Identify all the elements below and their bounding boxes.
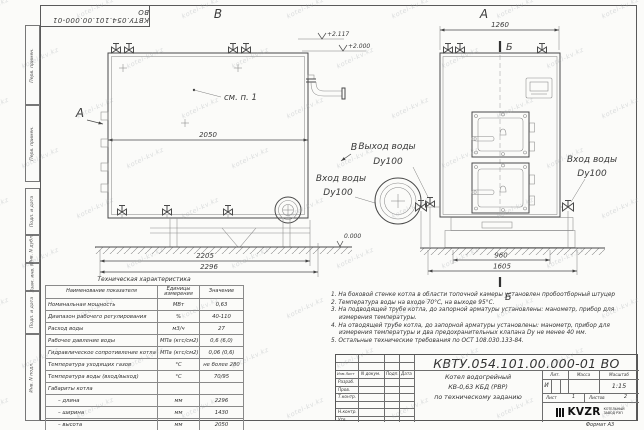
spec-table: Наименование показателя Единицыизмерения… xyxy=(45,285,244,430)
elevation-text: +2.117 xyxy=(327,31,349,38)
spec-cell-value: 2296 xyxy=(200,395,244,407)
spec-header-row: Наименование показателя Единицыизмерения… xyxy=(46,286,244,299)
valve-symbol xyxy=(416,201,427,212)
product-name-line3: по техническому заданию xyxy=(414,393,542,403)
upper-door xyxy=(472,112,535,157)
outlet-elbow-pipe xyxy=(306,75,345,99)
spec-cell-name: Номинальная мощность xyxy=(46,299,158,311)
title-block: КВТУ.054.101.00.000-01 ВО Изм.Лист N док… xyxy=(335,354,638,421)
spec-cell-name: Гидравлическое сопротивление котла xyxy=(46,347,158,359)
inlet-side-line2: Dy100 xyxy=(323,188,353,198)
format-label: Формат А3 xyxy=(560,422,640,428)
view-b-arrow xyxy=(341,154,351,161)
spec-cell-value: 2050 xyxy=(200,419,244,430)
valve-symbol xyxy=(563,201,574,212)
dim-text: 1605 xyxy=(493,263,511,271)
note-item: 4. На отводящей трубе котла, до запорной… xyxy=(331,323,639,338)
spec-cell-unit: мм xyxy=(158,395,200,407)
front-view xyxy=(416,44,606,256)
burner-flange-small xyxy=(275,197,301,223)
tb-header-izm: Изм.Лист xyxy=(337,372,355,376)
sheet-value: 1 xyxy=(572,395,575,400)
valve-symbol xyxy=(456,44,465,54)
doc-number: КВТУ.054.101.00.000-01 ВО xyxy=(414,356,639,371)
spec-col-units-l2: измерения xyxy=(164,291,193,297)
tb-row-utv: Утв. xyxy=(338,417,347,422)
spec-cell-name: – ширина xyxy=(46,407,158,419)
tb-header-doc: N докум. xyxy=(361,371,380,376)
scale-value: 1:15 xyxy=(599,382,639,390)
sheets-label: Листов xyxy=(589,395,605,400)
inlet-front-label: Вход воды Dy100 xyxy=(567,155,617,202)
view-b-arrow-label: В xyxy=(351,142,358,153)
see-note-text: см. п. 1 xyxy=(224,93,257,103)
view-a-title: А xyxy=(479,7,488,21)
spec-cell-unit: °С xyxy=(158,371,200,383)
dim-text: 2296 xyxy=(200,263,218,271)
logo-subtitle-line2: ЗАВОД РЭП xyxy=(604,412,625,416)
see-note-callout: см. п. 1 xyxy=(193,89,257,103)
inlet-front-line1: Вход воды xyxy=(567,155,617,165)
spec-cell-name: Габариты котла xyxy=(46,383,158,395)
dimension-side-mid: 2205 xyxy=(100,220,310,266)
valve-symbol xyxy=(112,44,121,54)
elevation-text: +2.000 xyxy=(348,43,370,50)
spec-cell-name: Рабочее давление воды xyxy=(46,335,158,347)
tb-row-nkontr: Н.контр. xyxy=(338,409,357,414)
lower-door xyxy=(472,163,535,213)
product-name: Котел водогрейный КВ-0,63 КБД (РВР) по т… xyxy=(414,373,542,403)
inlet-side-label: Вход воды Dy100 xyxy=(316,174,375,203)
mass-header: Масса xyxy=(568,372,599,377)
valve-symbol xyxy=(538,44,547,54)
side-view xyxy=(95,44,352,255)
spec-cell-unit: мм xyxy=(158,407,200,419)
technical-notes: 1. На боковой стенке котла в области топ… xyxy=(331,292,639,345)
note-item: 5. Остальные технические требования по О… xyxy=(331,338,639,346)
spec-cell-name: – высота xyxy=(46,419,158,430)
spec-row: Рабочее давление водыМПа (кгс/см2)0,6 (6… xyxy=(46,335,244,347)
product-name-line1: Котел водогрейный xyxy=(414,373,542,383)
spec-cell-name: Расход воды xyxy=(46,323,158,335)
kvzr-logo: KVZR КОТЕЛЬНЫЙ ЗАВОД РЭП xyxy=(542,406,639,418)
spec-cell-unit: МПа (кгс/см2) xyxy=(158,347,200,359)
tb-row-razrab: Разраб. xyxy=(338,379,354,384)
spec-cell-value: 40-110 xyxy=(200,311,244,323)
spec-cell-unit: °С xyxy=(158,359,200,371)
valve-symbol xyxy=(444,44,453,54)
spec-cell-value: 70/95 xyxy=(200,371,244,383)
spec-row: Номинальная мощностьМВт0,63 xyxy=(46,299,244,311)
spec-cell-value: 0,6 (6,0) xyxy=(200,335,244,347)
note-item: 3. На подводящей трубе котла, до запорно… xyxy=(331,307,639,322)
spec-cell-value: 1430 xyxy=(200,407,244,419)
section-letter: Б xyxy=(506,42,513,53)
spec-col-name: Наименование показателя xyxy=(46,286,158,299)
view-a-arrow-label: А xyxy=(75,106,84,120)
outlet-label-line2: Dy100 xyxy=(373,157,403,167)
spec-cell-name: Температура воды (вход/выход) xyxy=(46,371,158,383)
lit-header: Лит. xyxy=(542,372,568,377)
valve-symbol xyxy=(242,44,251,54)
spec-cell-name: Температура уходящих газов xyxy=(46,359,158,371)
spec-row: Температура воды (вход/выход)°С70/95 xyxy=(46,371,244,383)
inlet-flange-large xyxy=(375,178,435,247)
spec-col-value: Значение xyxy=(200,286,244,299)
product-name-line2: КВ-0,63 КБД (РВР) xyxy=(414,383,542,393)
logo-text: KVZR xyxy=(567,406,600,418)
base-plinth xyxy=(445,218,575,248)
valve-symbol xyxy=(118,206,127,216)
spec-table-block: Техническая характеристика Наименование … xyxy=(45,276,244,430)
spec-row: Габариты котла xyxy=(46,383,244,395)
dim-text: 960 xyxy=(494,252,508,260)
spec-cell-unit: м3/ч xyxy=(158,323,200,335)
outlet-label-line1: Выход воды xyxy=(358,142,415,152)
spec-cell-unit: % xyxy=(158,311,200,323)
note-item: 2. Температура воды на входе 70°С, на вы… xyxy=(331,300,639,308)
spec-row: – ширинамм1430 xyxy=(46,407,244,419)
spec-cell-value: 27 xyxy=(200,323,244,335)
spec-row: – длинамм2296 xyxy=(46,395,244,407)
spec-row: Гидравлическое сопротивление котлаМПа (к… xyxy=(46,347,244,359)
dim-text: 2205 xyxy=(196,252,214,260)
valve-symbol xyxy=(163,206,172,216)
tb-header-date: Дата xyxy=(401,371,412,376)
spec-cell-unit: мм xyxy=(158,419,200,430)
spec-cell-value xyxy=(200,383,244,395)
drawing-sheet: КВТУ.054.101.00.000-01 ВО Перв. примен. … xyxy=(0,0,644,430)
spec-cell-unit xyxy=(158,383,200,395)
ground-hatch xyxy=(95,248,352,255)
note-item: 1. На боковой стенке котла в области топ… xyxy=(331,292,639,300)
spec-cell-unit: МПа (кгс/см2) xyxy=(158,335,200,347)
spec-row: Расход водым3/ч27 xyxy=(46,323,244,335)
spec-cell-unit: МВт xyxy=(158,299,200,311)
sheet-label: Лист xyxy=(546,395,557,400)
view-a-arrow xyxy=(87,120,103,124)
dimension-side-top: 2050 xyxy=(108,131,308,140)
valve-symbol xyxy=(125,44,134,54)
spec-row: – высотамм2050 xyxy=(46,419,244,430)
spec-col-units: Единицыизмерения xyxy=(158,286,200,299)
dim-text: 1260 xyxy=(491,21,509,29)
tb-row-prov: Пров. xyxy=(338,387,350,392)
spec-cell-value: не более 280 xyxy=(200,359,244,371)
elevation-text: 0.000 xyxy=(344,233,361,240)
valve-symbol xyxy=(224,206,233,216)
spec-row: Диапазон рабочего регулирования%40-110 xyxy=(46,311,244,323)
spec-cell-value: 0,06 (0,6) xyxy=(200,347,244,359)
logo-bars-icon xyxy=(556,408,564,417)
elevation-marks: +2.117 +2.000 0.000 xyxy=(298,31,370,247)
inlet-front-line2: Dy100 xyxy=(577,169,607,179)
sheets-value: 2 xyxy=(624,395,627,400)
inlet-side-line1: Вход воды xyxy=(316,174,366,184)
lit-value: И xyxy=(542,382,551,389)
dim-text: 2050 xyxy=(199,131,217,139)
spec-cell-name: Диапазон рабочего регулирования xyxy=(46,311,158,323)
spec-row: Температура уходящих газов°Сне более 280 xyxy=(46,359,244,371)
tb-header-sign: Подп. xyxy=(386,371,399,376)
section-mark-top: Б xyxy=(500,41,513,53)
valve-symbol xyxy=(229,44,238,54)
tb-row-tkontr: Т.контр. xyxy=(338,394,356,399)
scale-header: Масштаб xyxy=(599,372,639,377)
spec-cell-value: 0,63 xyxy=(200,299,244,311)
view-b-title: В xyxy=(214,7,222,21)
spec-table-title: Техническая характеристика xyxy=(45,276,243,283)
spec-cell-name: – длина xyxy=(46,395,158,407)
logo-subtitle: КОТЕЛЬНЫЙ ЗАВОД РЭП xyxy=(604,408,625,415)
